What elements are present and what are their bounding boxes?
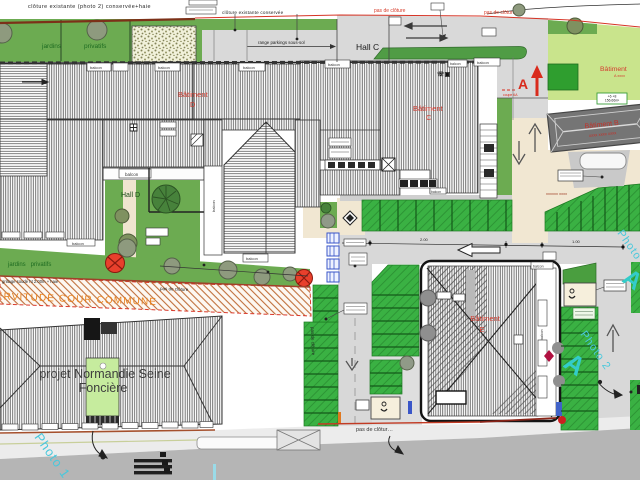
svg-text:balcon: balcon (328, 62, 340, 67)
svg-text:balcon: balcon (246, 256, 258, 261)
svg-text:1.00: 1.00 (572, 239, 581, 244)
svg-text:Bâtiment: Bâtiment (600, 66, 627, 73)
svg-text:2.00: 2.00 (420, 237, 429, 242)
svg-text:balcon: balcon (125, 172, 139, 177)
svg-text:Hall D: Hall D (121, 192, 140, 199)
svg-text:range parkings sous-sol: range parkings sous-sol (258, 40, 305, 45)
svg-text:xxxxxx xxxx: xxxxxx xxxx (546, 191, 567, 196)
svg-text:privatifs: privatifs (84, 43, 107, 50)
svg-text:☏▣: ☏▣ (437, 71, 451, 78)
svg-text:grillage soudé ht 2.00m + haie: grillage soudé ht 2.00m + haie (2, 279, 59, 284)
svg-text:pas de clôture: pas de clôture (310, 327, 316, 356)
svg-text:pas de clôtur…: pas de clôtur… (356, 427, 393, 433)
svg-text:156.66m²: 156.66m² (605, 99, 620, 103)
svg-text:projet Normandie Seine: projet Normandie Seine (39, 367, 170, 381)
svg-text:balcon: balcon (540, 329, 544, 340)
svg-text:Hall C: Hall C (356, 42, 379, 52)
svg-text:pas de clôture: pas de clôture (160, 286, 189, 292)
svg-text:Bâtiment: Bâtiment (413, 104, 444, 113)
svg-text:A xxxx: A xxxx (614, 74, 625, 78)
svg-text:balcon: balcon (90, 65, 102, 70)
svg-text:balcon: balcon (243, 65, 255, 70)
svg-text:Bâtiment: Bâtiment (470, 314, 501, 323)
svg-text:balcon: balcon (431, 190, 441, 194)
svg-text:balcon: balcon (533, 265, 544, 269)
svg-text:clôture existante conservée: clôture existante conservée (222, 10, 284, 15)
svg-text:jardins privatifs: jardins privatifs (7, 262, 51, 268)
svg-text:clôture existante (photo 2) co: clôture existante (photo 2) conservée+ha… (28, 4, 151, 10)
svg-text:pas de clôture: pas de clôture (374, 8, 406, 14)
svg-text:E: E (479, 325, 484, 334)
svg-text:balcon: balcon (477, 60, 489, 65)
svg-text:A: A (518, 76, 528, 92)
svg-text:Bâtiment: Bâtiment (178, 90, 209, 99)
svg-text:balcon: balcon (211, 200, 216, 212)
svg-text:C: C (426, 113, 432, 122)
svg-text:Foncière: Foncière (79, 381, 128, 395)
svg-text:balcon: balcon (450, 62, 461, 66)
svg-text:coupe AA: coupe AA (503, 93, 518, 97)
svg-text:balcon: balcon (72, 241, 84, 246)
svg-text:balcon: balcon (158, 65, 170, 70)
svg-text:pas de clôture: pas de clôture (484, 10, 516, 16)
svg-text:jardins: jardins (41, 43, 62, 50)
svg-text:D: D (190, 100, 196, 109)
